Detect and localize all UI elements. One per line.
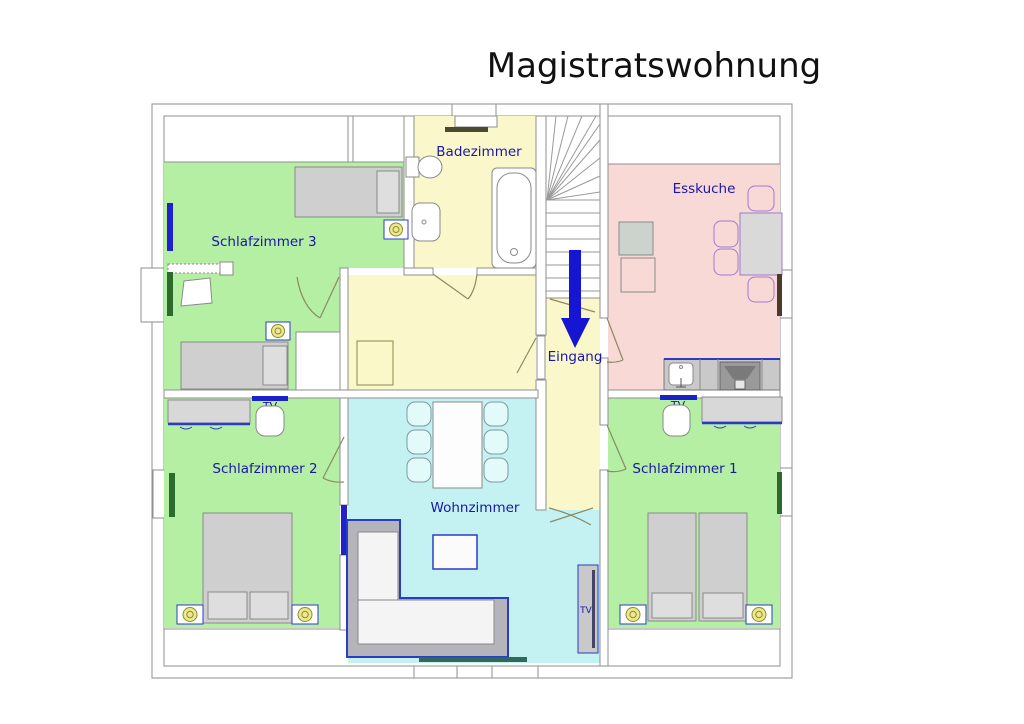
closet-floor [296,332,340,394]
page-title: Magistratswohnung [487,46,822,86]
desk-drawer [220,262,233,275]
window-marker [167,203,173,251]
pillow [703,593,743,618]
window-marker [169,473,175,517]
pillow [250,592,288,619]
kitchen-sink-icon [669,363,693,387]
floor-plan: Magistratswohnung [0,0,1024,724]
room-label-schlafzimmer-1: Schlafzimmer 1 [632,461,737,477]
chair [256,406,284,436]
tv-unit: TV [578,565,598,653]
wardrobe [168,400,250,429]
window-recess [141,268,164,322]
coffee-table [433,535,477,569]
chimney [455,116,497,127]
lamp-icon [292,605,318,624]
pillow [208,592,247,619]
pillow [377,171,399,213]
window-marker [777,472,782,514]
room-label-badezimmer: Badezimmer [436,144,522,160]
tv-label: TV [579,606,592,616]
wardrobe [702,397,782,428]
sink-icon [412,203,440,241]
pillow [263,346,287,385]
kitchen-counter [664,359,780,390]
cabinet [619,222,653,255]
cabinet [621,258,655,292]
door-panel [537,336,545,379]
balcony-door-marker [492,666,538,678]
lamp-icon [620,605,646,624]
room-label-esskuche: Esskuche [673,181,736,197]
room-label-schlafzimmer-3: Schlafzimmer 3 [211,234,316,250]
chair [181,278,212,306]
entrance-label: Eingang [548,349,603,365]
dining-table [740,213,782,275]
window-marker [419,657,527,662]
bathtub-icon [492,168,536,268]
chair [663,405,690,436]
floorplan-page: Magistratswohnung [0,0,1024,724]
dining-table [433,402,482,488]
window-marker [167,272,173,316]
pillow [652,593,692,618]
lamp-icon [177,605,203,624]
lamp-icon [384,220,408,239]
hall-cabinet [357,341,393,385]
room-label-schlafzimmer-2: Schlafzimmer 2 [212,461,317,477]
stove-icon [720,362,760,390]
lamp-icon [746,605,772,624]
desk [168,264,226,273]
window-marker [445,127,488,132]
balcony-door-marker [414,666,457,678]
lamp-icon [266,322,290,340]
room-label-wohnzimmer: Wohnzimmer [431,500,520,516]
window-marker [777,274,782,316]
